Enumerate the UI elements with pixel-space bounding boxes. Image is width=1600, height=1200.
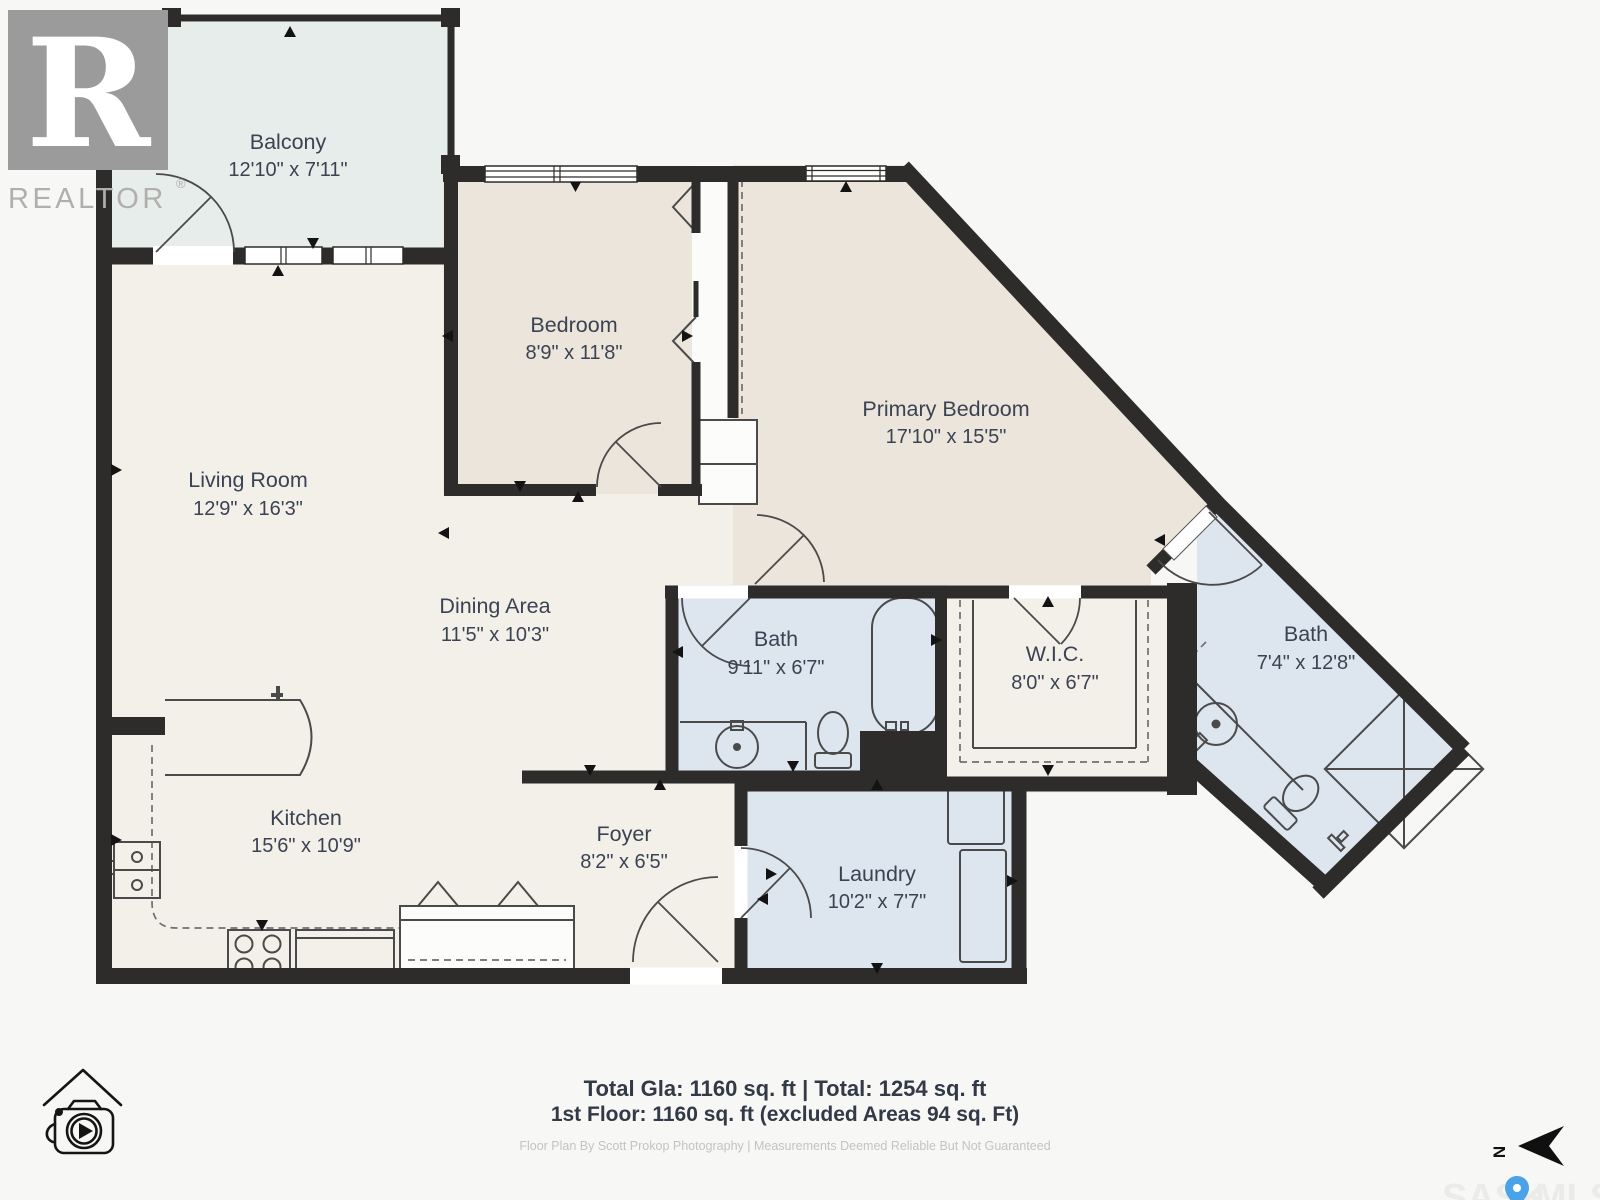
primary-window <box>806 166 886 181</box>
foyer-closet <box>400 906 574 976</box>
bath-wall-chunk <box>860 731 947 780</box>
balcony-door-opening <box>153 246 233 265</box>
room-label-balcony: Balcony <box>250 130 327 154</box>
room-dims-kitchen: 15'6" x 10'9" <box>251 835 361 857</box>
room-dims-bath-ensuite: 7'4" x 12'8" <box>1257 652 1356 674</box>
room-label-laundry: Laundry <box>838 862 916 886</box>
room-label-dining-area: Dining Area <box>439 594 550 618</box>
north-label: N <box>1490 1146 1509 1158</box>
room-label-bath-ensuite: Bath <box>1284 622 1328 646</box>
room-label-wic: W.I.C. <box>1026 642 1085 666</box>
room-dims-living-room: 12'9" x 16'3" <box>193 498 303 520</box>
kitchen-wall-stub <box>96 717 165 735</box>
realtor-wordmark: REALTOR <box>8 183 167 215</box>
room-dims-wic: 8'0" x 6'7" <box>1011 672 1098 694</box>
room-label-bedroom: Bedroom <box>530 313 617 337</box>
watermark: SASK MLS <box>1442 1176 1600 1200</box>
bedroom-window <box>485 166 637 182</box>
realtor-logo: R REALTOR ® <box>8 6 186 215</box>
closet-shelf-box <box>699 420 757 464</box>
north-arrow-icon <box>1518 1126 1564 1166</box>
room-dims-foyer: 8'2" x 6'5" <box>580 851 667 873</box>
floor-plan-page: Balcony 12'10" x 7'11" Living Room 12'9"… <box>0 0 1600 1200</box>
registered-trademark-icon: ® <box>176 176 186 191</box>
footer-first-floor: 1st Floor: 1160 sq. ft (excluded Areas 9… <box>551 1103 1019 1126</box>
bath-door-opening <box>678 586 748 599</box>
primary-bedroom-floor <box>733 165 1216 592</box>
room-label-bath-main: Bath <box>754 627 798 651</box>
footer-credit: Floor Plan By Scott Prokop Photography |… <box>519 1139 1050 1153</box>
watermark-sask: SASK <box>1442 1177 1548 1200</box>
laundry-door-opening <box>735 846 748 918</box>
railing-post <box>441 8 460 27</box>
room-label-primary-bedroom: Primary Bedroom <box>862 397 1029 421</box>
play-icon <box>79 1123 93 1139</box>
room-label-living-room: Living Room <box>188 468 308 492</box>
watermark-mls: MLS <box>1535 1177 1600 1200</box>
room-dims-primary-bedroom: 17'10" x 15'5" <box>886 426 1007 448</box>
north-compass: N <box>1490 1126 1564 1166</box>
wic-door-opening <box>1009 586 1081 599</box>
footer: Total Gla: 1160 sq. ft | Total: 1254 sq.… <box>519 1076 1050 1153</box>
realtor-logo-letter: R <box>26 6 152 182</box>
room-label-foyer: Foyer <box>597 822 652 846</box>
balcony-window <box>245 247 322 264</box>
floor-plan-canvas: Balcony 12'10" x 7'11" Living Room 12'9"… <box>0 0 1600 1200</box>
map-pin-dot-icon <box>1513 1184 1521 1192</box>
railing-post <box>441 155 460 174</box>
ensuite-sink-drain-icon <box>1212 720 1221 729</box>
wic-right-wall <box>1167 583 1197 795</box>
room-dims-dining-area: 11'5" x 10'3" <box>441 624 549 646</box>
room-dims-laundry: 10'2" x 7'7" <box>828 891 927 913</box>
room-dims-balcony: 12'10" x 7'11" <box>228 159 347 181</box>
camera-dot-icon <box>55 1108 63 1116</box>
room-label-kitchen: Kitchen <box>270 806 342 830</box>
balcony-window <box>333 247 403 264</box>
photographer-logo <box>44 1070 121 1153</box>
closet-shelf-box <box>699 464 757 504</box>
room-dims-bath-main: 9'11" x 6'7" <box>727 657 824 679</box>
entry-door-opening <box>630 968 722 985</box>
room-dims-bedroom: 8'9" x 11'8" <box>525 342 622 364</box>
footer-total-gla: Total Gla: 1160 sq. ft | Total: 1254 sq.… <box>584 1076 987 1101</box>
bath-sink-drain-icon <box>733 743 741 751</box>
